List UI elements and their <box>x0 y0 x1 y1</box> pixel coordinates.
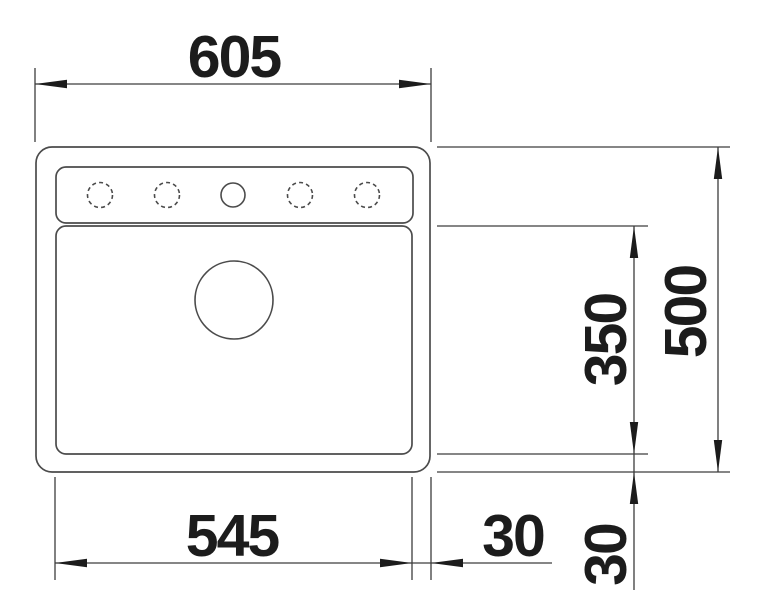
dim-label-overall-depth: 500 <box>653 266 719 359</box>
arrowhead-left <box>35 80 67 88</box>
tap-hole-5-dashed <box>355 183 380 208</box>
dim-label-bowl-depth: 350 <box>573 294 639 387</box>
dim-label-edge-offset-right: 30 <box>482 503 544 569</box>
arrowhead-right <box>399 80 431 88</box>
sink-outline-group <box>36 147 430 472</box>
tap-hole-4-dashed <box>288 183 313 208</box>
dim-overall-width: 605 <box>35 24 431 142</box>
arrowhead-up <box>630 226 638 258</box>
tap-hole-2-dashed <box>155 183 180 208</box>
arrowhead-up <box>630 472 638 504</box>
arrowhead-down <box>714 440 722 472</box>
drawing-area: 605 500 350 30 <box>0 0 762 600</box>
arrowhead-left <box>431 559 463 567</box>
sink-dimension-drawing: 605 500 350 30 <box>0 0 762 600</box>
tap-deck-outline <box>56 167 413 223</box>
dim-edge-offset-right: 30 <box>431 503 544 569</box>
dim-edge-offset-bottom: 30 <box>573 472 639 586</box>
arrowhead-left <box>55 559 87 567</box>
dim-label-edge-offset-bottom: 30 <box>573 524 639 586</box>
tap-hole-3-solid <box>221 183 245 207</box>
tap-hole-1-dashed <box>88 183 113 208</box>
dim-label-cutout-width: 545 <box>186 503 280 569</box>
dim-label-overall-width: 605 <box>188 24 282 90</box>
dim-cutout-width: 545 <box>55 477 552 580</box>
arrowhead-right <box>380 559 412 567</box>
drain-circle <box>195 261 273 339</box>
arrowhead-down <box>630 422 638 454</box>
arrowhead-up <box>714 147 722 179</box>
sink-outer-outline <box>36 147 430 472</box>
